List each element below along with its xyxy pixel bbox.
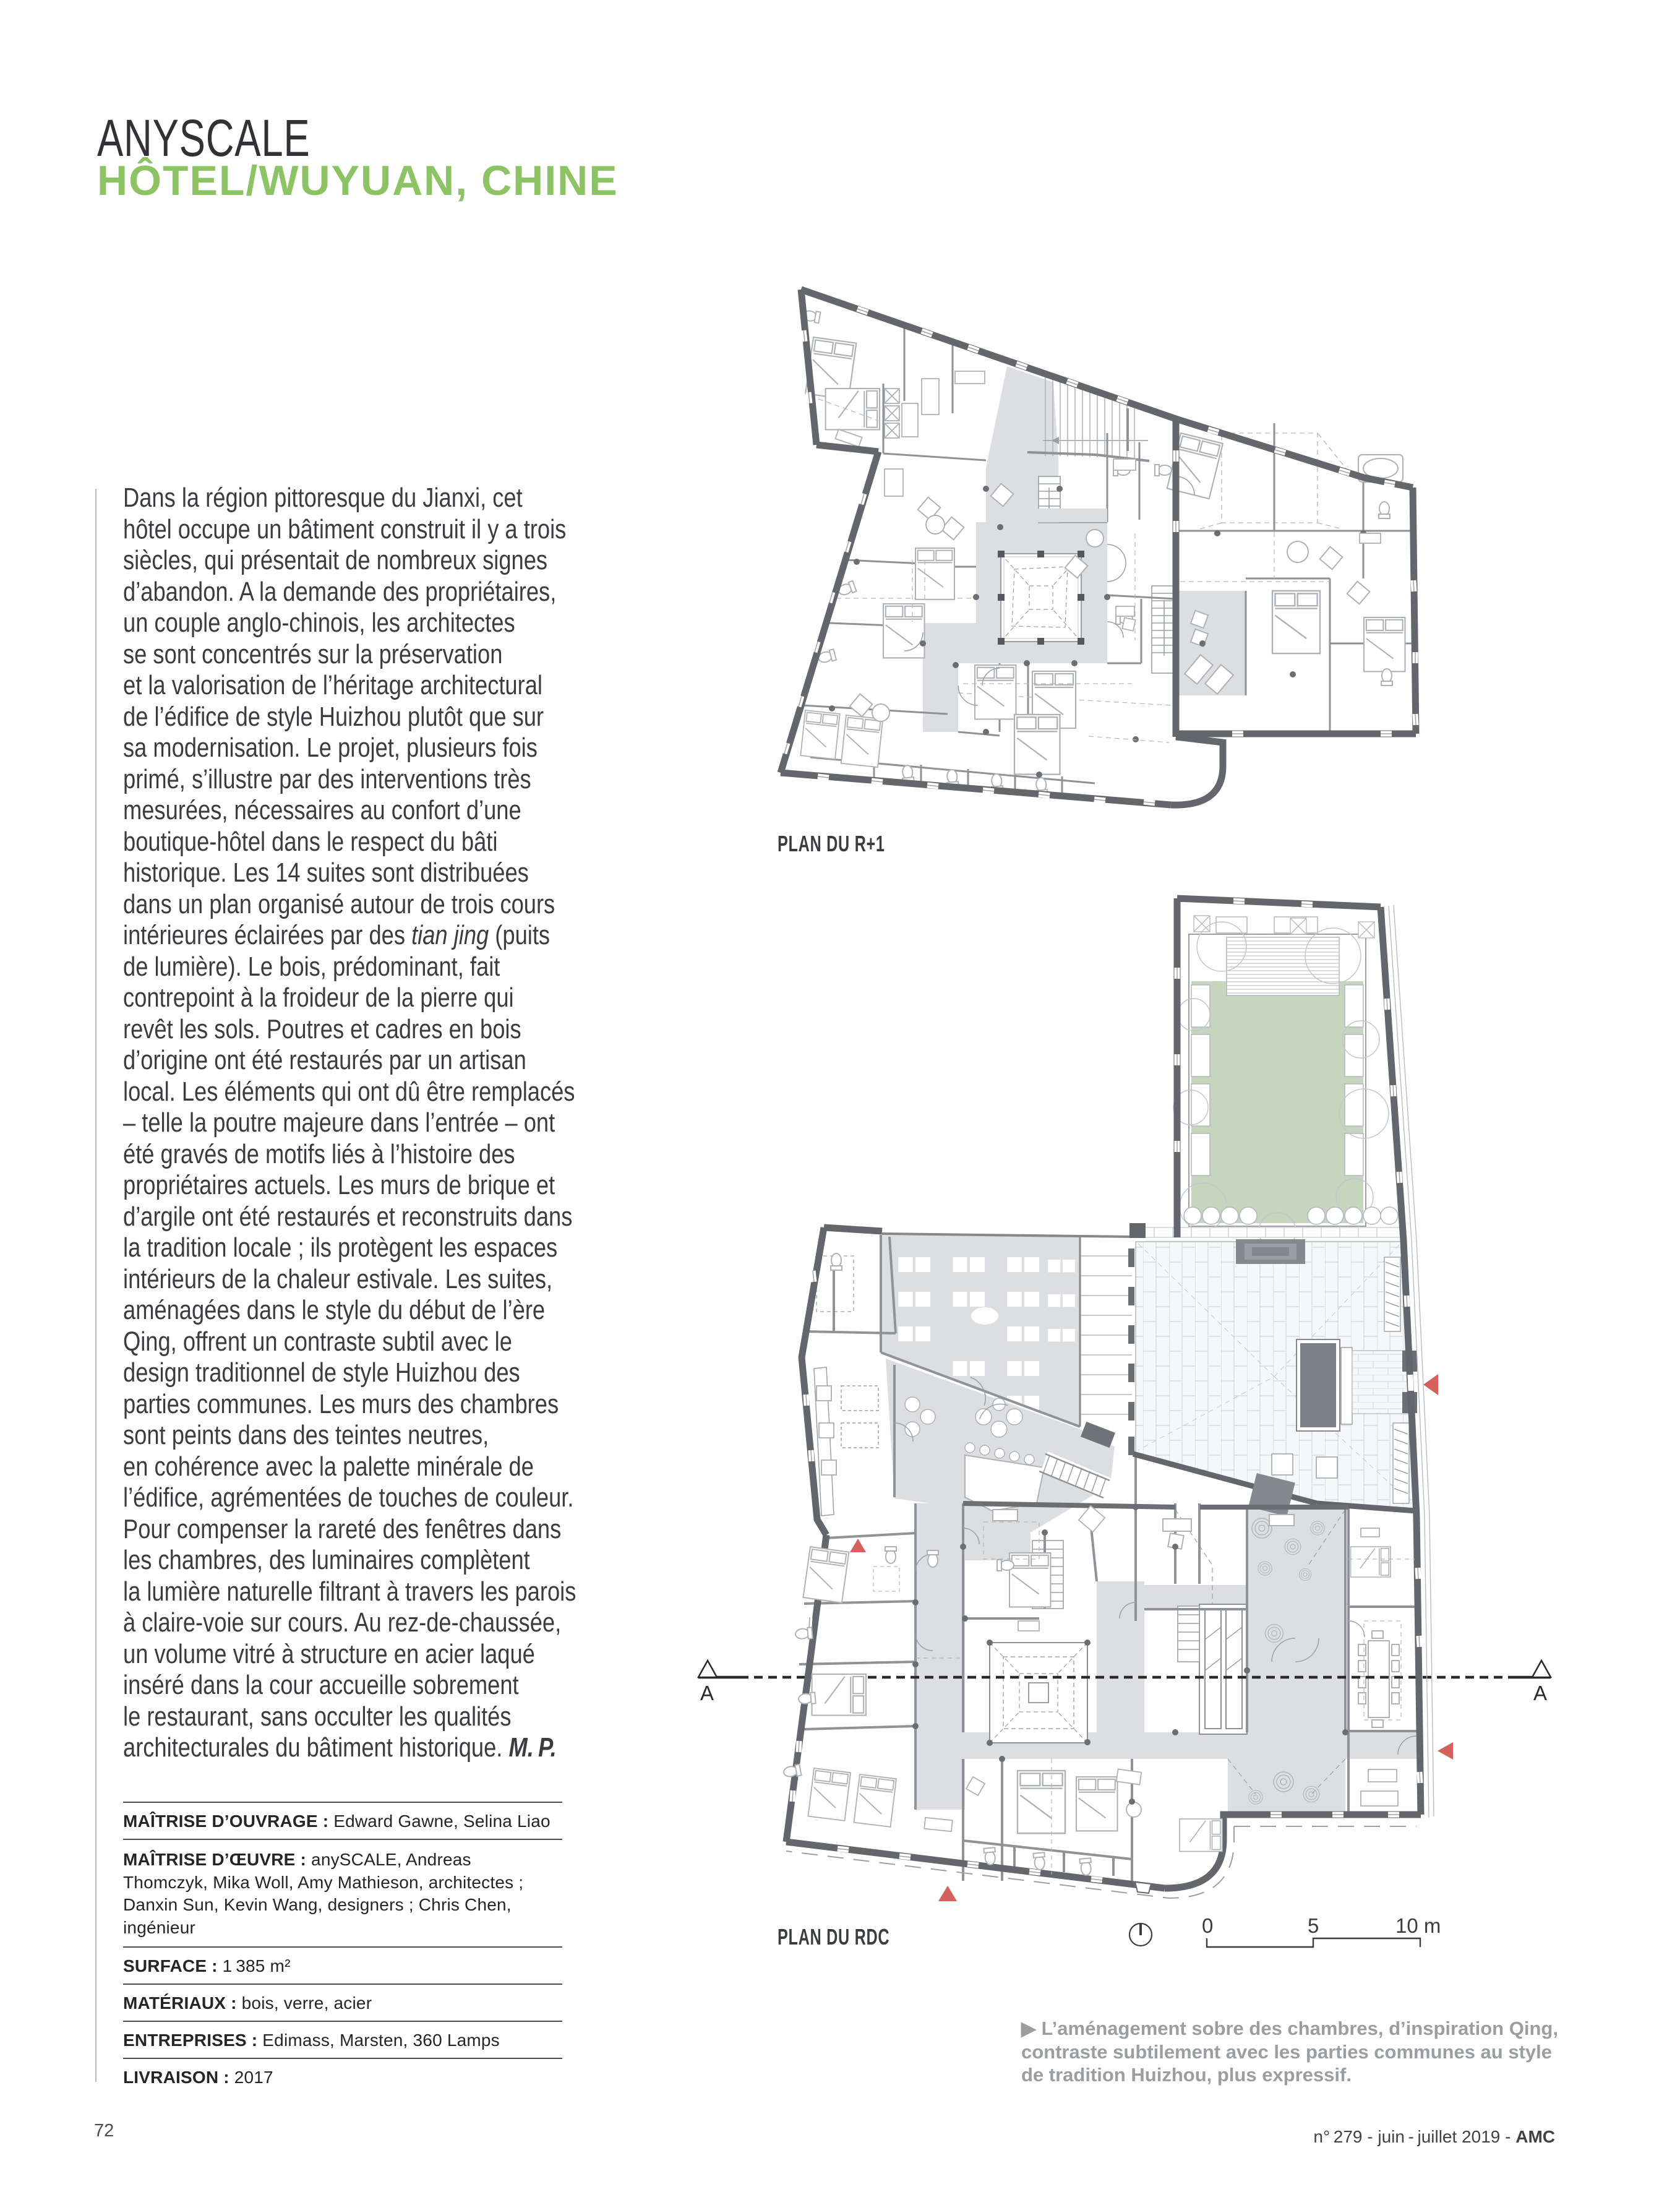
- svg-text:10 m: 10 m: [1395, 1914, 1441, 1937]
- svg-text:0: 0: [1202, 1914, 1213, 1937]
- svg-text:A: A: [700, 1682, 714, 1704]
- svg-text:5: 5: [1308, 1914, 1319, 1937]
- svg-text:A: A: [1533, 1682, 1547, 1704]
